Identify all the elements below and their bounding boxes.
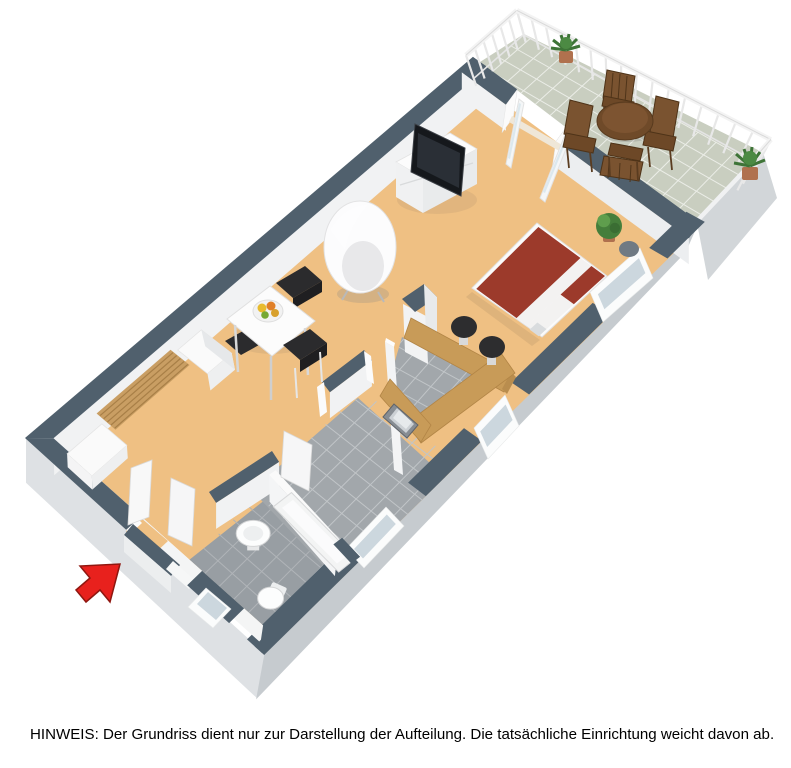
svg-text:HINWEIS: Der Grundriss dient n: HINWEIS: Der Grundriss dient nur zur Dar… [30, 726, 774, 743]
